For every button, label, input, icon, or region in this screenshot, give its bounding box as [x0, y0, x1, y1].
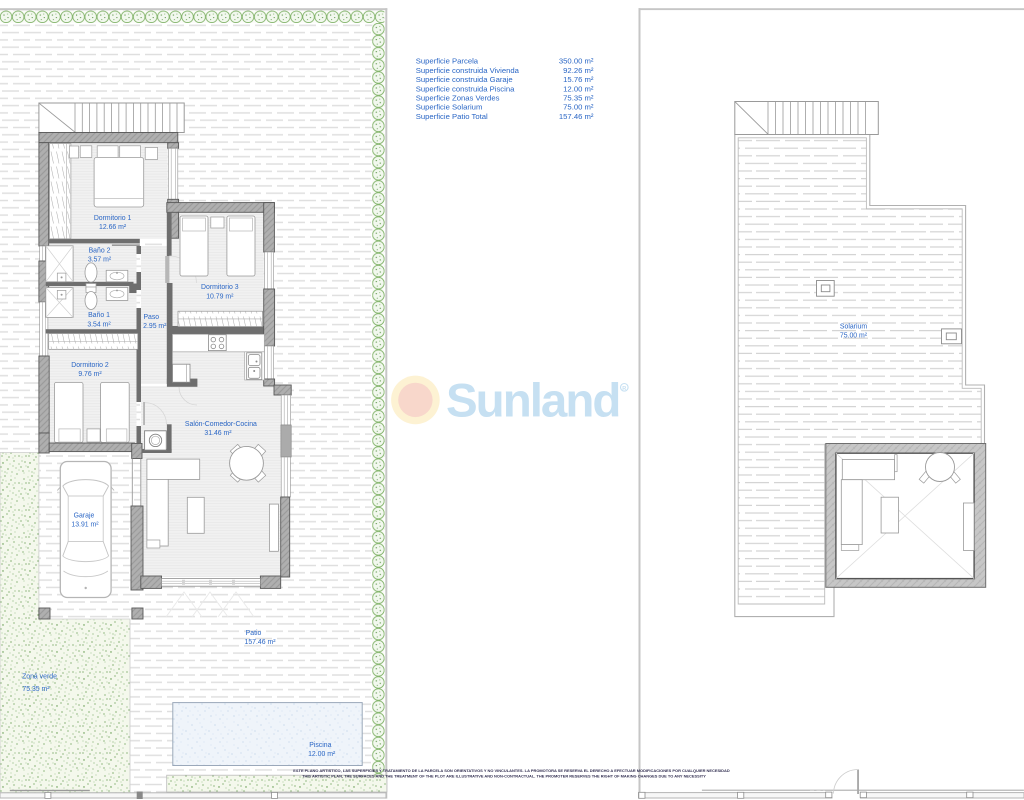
- svg-text:Superficie Zonas Verdes: Superficie Zonas Verdes: [416, 94, 500, 103]
- svg-text:92.26 m²: 92.26 m²: [563, 66, 594, 75]
- svg-text:Patio: Patio: [246, 630, 262, 637]
- svg-text:Superficie construida Piscina: Superficie construida Piscina: [416, 84, 515, 93]
- svg-text:Paso: Paso: [143, 314, 159, 321]
- svg-text:13.91 m²: 13.91 m²: [71, 522, 99, 529]
- svg-text:9.76 m²: 9.76 m²: [78, 371, 102, 378]
- svg-text:Baño 2: Baño 2: [89, 247, 111, 254]
- svg-text:350.00 m²: 350.00 m²: [559, 57, 594, 66]
- svg-text:Piscina: Piscina: [309, 742, 331, 749]
- svg-text:3.54 m²: 3.54 m²: [87, 321, 111, 328]
- svg-text:Superficie Solarium: Superficie Solarium: [416, 103, 483, 112]
- svg-text:12.00 m²: 12.00 m²: [563, 84, 594, 93]
- svg-text:Garaje: Garaje: [74, 512, 95, 519]
- svg-text:12.00 m²: 12.00 m²: [308, 751, 336, 758]
- svg-text:3.57 m²: 3.57 m²: [88, 257, 112, 264]
- svg-text:75.00 m²: 75.00 m²: [840, 332, 868, 339]
- svg-text:Dormitorio 2: Dormitorio 2: [71, 362, 109, 369]
- svg-text:75.00 m²: 75.00 m²: [563, 103, 594, 112]
- svg-text:Dormitorio 3: Dormitorio 3: [201, 284, 239, 291]
- svg-text:12.66 m²: 12.66 m²: [99, 224, 127, 231]
- svg-text:Superficie construida Vivienda: Superficie construida Vivienda: [416, 66, 520, 75]
- svg-text:Solarium: Solarium: [840, 323, 867, 330]
- svg-text:Superficie construida Garaje: Superficie construida Garaje: [416, 75, 513, 84]
- svg-text:2.95 m²: 2.95 m²: [143, 323, 167, 330]
- svg-text:75.35 m²: 75.35 m²: [22, 686, 50, 693]
- svg-text:Superficie Patio Total: Superficie Patio Total: [416, 112, 488, 121]
- svg-text:Sunland: Sunland: [446, 375, 619, 428]
- svg-text:15.76 m²: 15.76 m²: [563, 75, 594, 84]
- svg-text:R: R: [622, 386, 626, 392]
- svg-text:157.46 m²: 157.46 m²: [244, 639, 276, 646]
- svg-text:157.46 m²: 157.46 m²: [559, 112, 594, 121]
- svg-text:ESTE PLANO ARTISTICO, LAS SUPE: ESTE PLANO ARTISTICO, LAS SUPERFICIES Y …: [293, 768, 730, 773]
- svg-text:THIS ARTISTIC PLAN, THE SURFAC: THIS ARTISTIC PLAN, THE SURFACES AND THE…: [302, 774, 706, 779]
- svg-text:75.35 m²: 75.35 m²: [563, 94, 594, 103]
- svg-text:10.79 m²: 10.79 m²: [206, 293, 234, 300]
- svg-text:Salón-Comedor-Cocina: Salón-Comedor-Cocina: [185, 421, 257, 428]
- svg-text:Baño 1: Baño 1: [88, 312, 110, 319]
- svg-text:Superficie Parcela: Superficie Parcela: [416, 57, 479, 66]
- svg-text:Zoná verde: Zoná verde: [22, 673, 57, 680]
- svg-text:Dormitorio 1: Dormitorio 1: [94, 215, 132, 222]
- svg-text:31.46 m²: 31.46 m²: [204, 430, 232, 437]
